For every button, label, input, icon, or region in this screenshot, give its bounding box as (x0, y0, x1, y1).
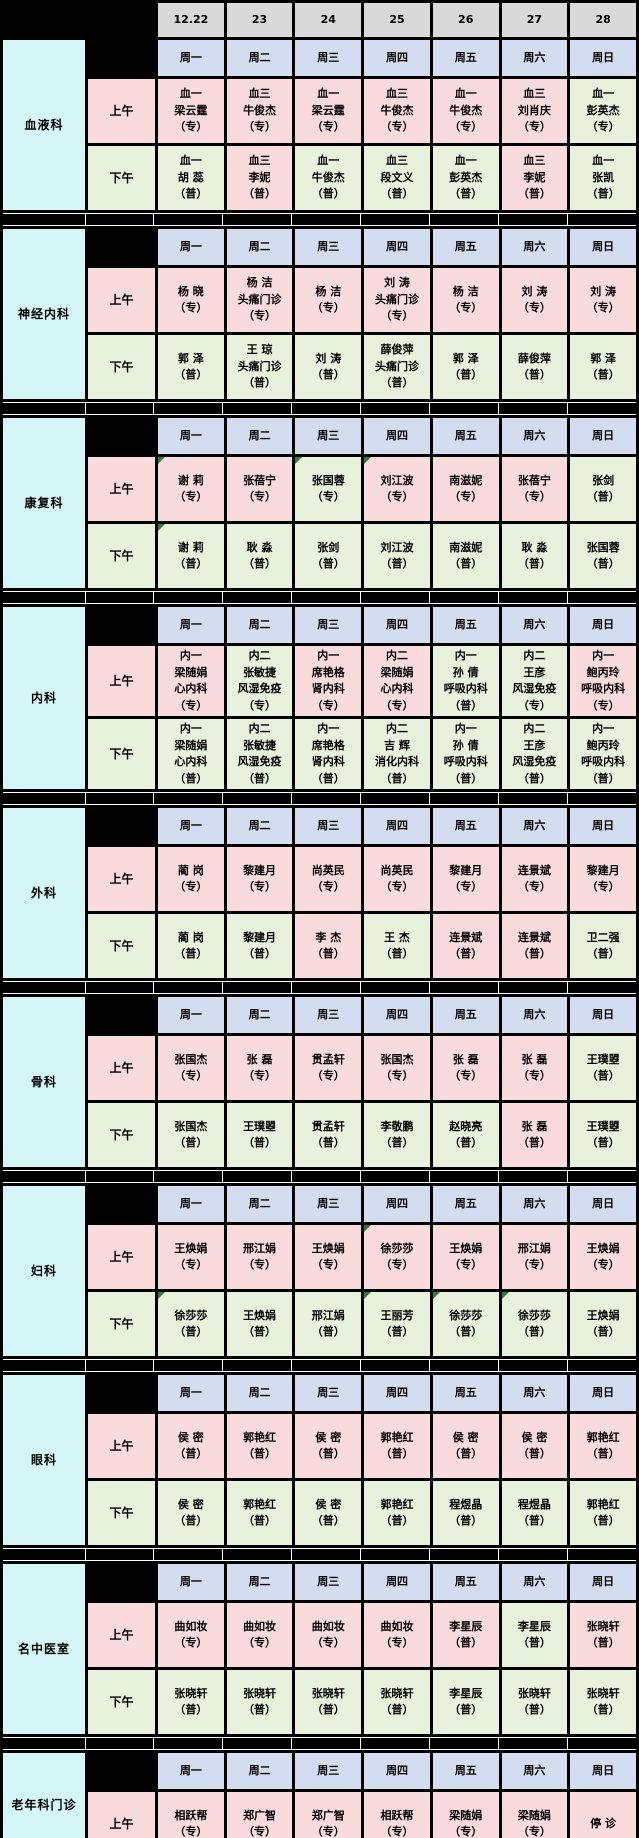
separator-bar (154, 592, 222, 603)
weekday-cell: 周四 (364, 418, 430, 454)
dept-cell: 骨科 (3, 997, 85, 1167)
date-cell: 23 (227, 3, 293, 37)
schedule-cell: 刘 涛 （普） (295, 335, 361, 399)
separator-bar (3, 982, 85, 993)
schedule-cell: 张晓轩 （普） (570, 1603, 636, 1667)
schedule-cell: 李星辰 （普） (433, 1603, 499, 1667)
schedule-cell: 尚英民 （专） (295, 847, 361, 911)
separator-bar (86, 1171, 153, 1182)
schedule-cell: 谢 莉 （专） (158, 457, 224, 521)
date-cell: 26 (433, 3, 499, 37)
schedule-cell: 内一 孙 倩 呼吸内科 （普） (433, 719, 499, 789)
schedule-cell: 程煜晶 （普） (502, 1481, 568, 1545)
dept-block-外科: 外科周一周二周三周四周五周六周日上午蔺 岗 （专）黎建月 （专）尚英民 （专）尚… (3, 808, 636, 978)
corner-cell (3, 3, 155, 37)
schedule-cell: 内二 吉 辉 消化内科 （普） (364, 719, 430, 789)
weekday-cell: 周日 (570, 1753, 636, 1789)
schedule-cell: 血一 张凯 （普） (570, 146, 636, 210)
weekday-row-spacer (88, 808, 155, 844)
session-label-cell: 下午 (88, 914, 155, 978)
schedule-cell: 郭 泽 （普） (433, 335, 499, 399)
weekday-cell: 周五 (433, 418, 499, 454)
schedule-cell: 刘 涛 （专） (570, 268, 636, 332)
separator-bar (568, 793, 636, 804)
schedule-cell: 黎建月 （专） (570, 847, 636, 911)
dept-cell: 眼科 (3, 1375, 85, 1545)
separator-bar (292, 1738, 360, 1749)
separator-bar (430, 1549, 498, 1560)
schedule-cell: 李星辰 （普） (433, 1670, 499, 1734)
session-label-cell: 下午 (88, 1103, 155, 1167)
weekday-cell: 周一 (158, 1375, 224, 1411)
weekday-cell: 周一 (158, 997, 224, 1033)
schedule-cell: 贯孟轩 （专） (295, 1036, 361, 1100)
weekday-cell: 周一 (158, 1753, 224, 1789)
schedule-cell: 张国蓉 （普） (570, 524, 636, 588)
separator-bar (3, 793, 85, 804)
schedule-cell: 内一 鲍丙玲 呼吸内科 （专） (570, 646, 636, 716)
dept-cell: 名中医室 (3, 1564, 85, 1734)
separator-bar (430, 214, 498, 225)
schedule-cell: 李 杰 （普） (295, 914, 361, 978)
schedule-cell: 贯孟轩 （普） (295, 1103, 361, 1167)
weekday-row-spacer (88, 1375, 155, 1411)
schedule-cell: 王璞曌 （普） (570, 1103, 636, 1167)
dept-cell: 神经内科 (3, 229, 85, 399)
schedule-cell: 徐莎莎 （专） (364, 1225, 430, 1289)
date-header-row: 12.22232425262728 (3, 3, 636, 37)
schedule-cell: 黎建月 （普） (227, 914, 293, 978)
schedule-cell: 郭艳红 （普） (364, 1414, 430, 1478)
separator-bar (499, 1171, 567, 1182)
separator-bar (430, 1171, 498, 1182)
schedule-cell: 王焕娟 （专） (570, 1225, 636, 1289)
block-separator (3, 591, 636, 604)
weekday-cell: 周五 (433, 808, 499, 844)
session-label-cell: 下午 (88, 524, 155, 588)
separator-bar (223, 592, 291, 603)
separator-bar (430, 1738, 498, 1749)
schedule-cell: 张晓轩 （普） (502, 1670, 568, 1734)
separator-bar (86, 982, 153, 993)
schedule-cell: 赵晓亮 （普） (433, 1103, 499, 1167)
session-label-cell: 上午 (88, 1603, 155, 1667)
block-separator (3, 1170, 636, 1183)
weekday-cell: 周二 (227, 1564, 293, 1600)
session-label-cell: 下午 (88, 1481, 155, 1545)
separator-bar (568, 403, 636, 414)
schedule-cell: 杨 洁 头痛门诊 （专） (227, 268, 293, 332)
weekday-cell: 周三 (295, 1564, 361, 1600)
schedule-cell: 邢江娟 （普） (295, 1292, 361, 1356)
separator-bar (292, 982, 360, 993)
schedule-cell: 南滋妮 （普） (433, 524, 499, 588)
weekday-cell: 周四 (364, 229, 430, 265)
dept-block-妇科: 妇科周一周二周三周四周五周六周日上午王焕娟 （专）邢江娟 （专）王焕娟 （专）徐… (3, 1186, 636, 1356)
separator-bar (568, 982, 636, 993)
schedule-cell: 内二 王彦 风湿免疫 （普） (502, 719, 568, 789)
weekday-cell: 周一 (158, 229, 224, 265)
schedule-cell: 张国杰 （专） (364, 1036, 430, 1100)
separator-bar (86, 214, 153, 225)
schedule-cell: 耿 淼 （普） (502, 524, 568, 588)
schedule-cell: 张 磊 （专） (502, 1036, 568, 1100)
schedule-cell: 杨 晓 （专） (158, 268, 224, 332)
schedule-cell: 内一 鲍丙玲 呼吸内科 （普） (570, 719, 636, 789)
dept-block-康复科: 康复科周一周二周三周四周五周六周日上午谢 莉 （专）张蓓宁 （专）张国蓉 （专）… (3, 418, 636, 588)
schedule-cell: 郭艳红 （普） (364, 1481, 430, 1545)
separator-bar (154, 403, 222, 414)
schedule-cell: 耿 淼 （普） (227, 524, 293, 588)
separator-bar (499, 1549, 567, 1560)
schedule-cell: 徐莎莎 （普） (158, 1292, 224, 1356)
schedule-cell: 徐莎莎 （普） (502, 1292, 568, 1356)
comment-marker-icon (364, 1225, 371, 1232)
session-label-cell: 下午 (88, 719, 155, 789)
schedule-cell: 相跃帮 （专） (364, 1792, 430, 1838)
separator-bar (292, 793, 360, 804)
separator-bar (86, 592, 153, 603)
separator-bar (499, 1738, 567, 1749)
comment-marker-icon (158, 524, 165, 531)
weekday-cell: 周六 (502, 607, 568, 643)
separator-bar (361, 592, 429, 603)
weekday-cell: 周日 (570, 1375, 636, 1411)
separator-bar (86, 1738, 153, 1749)
schedule-cell: 谢 莉 （普） (158, 524, 224, 588)
separator-bar (154, 1738, 222, 1749)
weekday-cell: 周二 (227, 418, 293, 454)
separator-bar (361, 214, 429, 225)
schedule-cell: 张晓轩 （普） (158, 1670, 224, 1734)
schedule-cell: 张剑 （普） (295, 524, 361, 588)
schedule-cell: 邢江娟 （专） (502, 1225, 568, 1289)
separator-bar (86, 793, 153, 804)
dept-block-内科: 内科周一周二周三周四周五周六周日上午内一 梁随娟 心内科 （专）内二 张敏捷 风… (3, 607, 636, 789)
separator-bar (361, 982, 429, 993)
separator-bar (154, 1549, 222, 1560)
separator-bar (3, 592, 85, 603)
dept-block-血液科: 血液科周一周二周三周四周五周六周日上午血一 梁云霆 （专）血三 牛俊杰 （专）血… (3, 40, 636, 210)
weekday-cell: 周三 (295, 607, 361, 643)
schedule-cell: 内二 王彦 风湿免疫 （专） (502, 646, 568, 716)
weekday-row-spacer (88, 1186, 155, 1222)
schedule-cell: 卫二强 （普） (570, 914, 636, 978)
schedule-cell: 连景斌 （专） (502, 847, 568, 911)
weekday-cell: 周五 (433, 1753, 499, 1789)
weekday-cell: 周四 (364, 1186, 430, 1222)
separator-bar (430, 1360, 498, 1371)
schedule-cell: 张晓轩 （普） (364, 1670, 430, 1734)
weekday-cell: 周六 (502, 808, 568, 844)
schedule-cell: 刘江波 （专） (364, 457, 430, 521)
schedule-cell: 邢江娟 （专） (227, 1225, 293, 1289)
weekday-cell: 周日 (570, 40, 636, 76)
schedule-cell: 内一 席艳格 肾内科 （普） (295, 719, 361, 789)
separator-bar (3, 214, 85, 225)
weekday-cell: 周六 (502, 1375, 568, 1411)
schedule-cell: 黎建月 （专） (227, 847, 293, 911)
weekday-cell: 周三 (295, 808, 361, 844)
schedule-cell: 张国蓉 （专） (295, 457, 361, 521)
schedule-cell: 连景斌 （普） (433, 914, 499, 978)
separator-bar (223, 214, 291, 225)
schedule-cell: 血一 牛俊杰 （普） (295, 146, 361, 210)
weekday-row-spacer (88, 1753, 155, 1789)
weekday-cell: 周四 (364, 1564, 430, 1600)
schedule-cell: 侯 密 （普） (502, 1414, 568, 1478)
weekday-cell: 周五 (433, 1375, 499, 1411)
weekday-cell: 周三 (295, 1186, 361, 1222)
schedule-cell: 张蓓宁 （专） (227, 457, 293, 521)
session-label-cell: 上午 (88, 268, 155, 332)
weekday-cell: 周一 (158, 808, 224, 844)
schedule-cell: 刘 涛 （专） (502, 268, 568, 332)
separator-bar (361, 403, 429, 414)
schedule-cell: 王丽芳 （普） (364, 1292, 430, 1356)
schedule-cell: 郭艳红 （普） (570, 1414, 636, 1478)
block-separator (3, 1548, 636, 1561)
separator-bar (154, 1360, 222, 1371)
weekday-cell: 周三 (295, 997, 361, 1033)
weekday-cell: 周四 (364, 1753, 430, 1789)
separator-bar (430, 982, 498, 993)
separator-bar (292, 1549, 360, 1560)
weekday-cell: 周六 (502, 1186, 568, 1222)
separator-bar (223, 793, 291, 804)
schedule-cell: 内一 孙 倩 呼吸内科 （普） (433, 646, 499, 716)
session-label-cell: 上午 (88, 1225, 155, 1289)
separator-bar (86, 403, 153, 414)
schedule-cell: 侯 密 （普） (158, 1414, 224, 1478)
separator-bar (86, 1360, 153, 1371)
weekday-cell: 周五 (433, 229, 499, 265)
schedule-cell: 内一 席艳格 肾内科 （专） (295, 646, 361, 716)
comment-marker-icon (295, 457, 302, 464)
weekday-cell: 周四 (364, 607, 430, 643)
dept-cell: 妇科 (3, 1186, 85, 1356)
schedule-cell: 血三 段文义 （普） (364, 146, 430, 210)
schedule-cell: 梁随娟 （专） (502, 1792, 568, 1838)
separator-bar (499, 793, 567, 804)
separator-bar (292, 403, 360, 414)
weekday-cell: 周五 (433, 607, 499, 643)
separator-bar (499, 1360, 567, 1371)
weekday-cell: 周一 (158, 40, 224, 76)
weekday-cell: 周一 (158, 1186, 224, 1222)
schedule-cell: 血三 李妮 （普） (227, 146, 293, 210)
schedule-cell: 内一 梁随娟 心内科 （专） (158, 646, 224, 716)
dept-cell: 康复科 (3, 418, 85, 588)
weekday-cell: 周二 (227, 997, 293, 1033)
session-label-cell: 上午 (88, 1414, 155, 1478)
separator-bar (3, 1738, 85, 1749)
separator-bar (154, 214, 222, 225)
weekday-cell: 周二 (227, 1753, 293, 1789)
separator-bar (568, 214, 636, 225)
separator-bar (223, 1360, 291, 1371)
schedule-cell: 王焕娟 （专） (158, 1225, 224, 1289)
dept-block-眼科: 眼科周一周二周三周四周五周六周日上午侯 密 （普）郭艳红 （普）侯 密 （普）郭… (3, 1375, 636, 1545)
weekday-cell: 周日 (570, 418, 636, 454)
weekday-row-spacer (88, 1564, 155, 1600)
session-label-cell: 下午 (88, 1670, 155, 1734)
outpatient-schedule-screen: 12.22232425262728血液科周一周二周三周四周五周六周日上午血一 梁… (0, 0, 639, 1838)
weekday-cell: 周一 (158, 1564, 224, 1600)
separator-bar (292, 214, 360, 225)
separator-bar (430, 403, 498, 414)
block-separator (3, 981, 636, 994)
schedule-cell: 血一 胡 蕊 （普） (158, 146, 224, 210)
weekday-cell: 周五 (433, 997, 499, 1033)
separator-bar (292, 1360, 360, 1371)
session-label-cell: 下午 (88, 1292, 155, 1356)
schedule-cell: 王璞曌 （普） (570, 1036, 636, 1100)
weekday-cell: 周日 (570, 607, 636, 643)
schedule-cell: 王 琼 头痛门诊 （普） (227, 335, 293, 399)
weekday-cell: 周四 (364, 997, 430, 1033)
schedule-table: 12.22232425262728血液科周一周二周三周四周五周六周日上午血一 梁… (3, 3, 636, 1838)
schedule-cell: 张国杰 （普） (158, 1103, 224, 1167)
schedule-cell: 张 磊 （专） (227, 1036, 293, 1100)
session-label-cell: 上午 (88, 1792, 155, 1838)
schedule-cell: 薛俊萍 （普） (502, 335, 568, 399)
schedule-cell: 南滋妮 （专） (433, 457, 499, 521)
schedule-cell: 杨 洁 （专） (433, 268, 499, 332)
block-separator (3, 402, 636, 415)
schedule-cell: 血一 梁云霆 （专） (295, 79, 361, 143)
dept-cell: 内科 (3, 607, 85, 789)
schedule-cell: 连景斌 （普） (502, 914, 568, 978)
weekday-cell: 周二 (227, 607, 293, 643)
schedule-cell: 蔺 岗 （专） (158, 847, 224, 911)
schedule-cell: 侯 密 （普） (295, 1481, 361, 1545)
separator-bar (361, 1549, 429, 1560)
comment-marker-icon (158, 457, 165, 464)
weekday-cell: 周日 (570, 229, 636, 265)
separator-bar (568, 1549, 636, 1560)
schedule-cell: 黎建月 （专） (433, 847, 499, 911)
weekday-cell: 周二 (227, 229, 293, 265)
separator-bar (154, 793, 222, 804)
separator-bar (223, 1171, 291, 1182)
schedule-cell: 刘江波 （普） (364, 524, 430, 588)
weekday-cell: 周二 (227, 40, 293, 76)
schedule-cell: 侯 密 （普） (433, 1414, 499, 1478)
separator-bar (361, 1171, 429, 1182)
comment-marker-icon (433, 1292, 440, 1299)
weekday-cell: 周三 (295, 40, 361, 76)
separator-bar (3, 403, 85, 414)
schedule-cell: 张剑 （普） (570, 457, 636, 521)
separator-bar (499, 214, 567, 225)
schedule-cell: 曲如妆 （专） (364, 1603, 430, 1667)
schedule-cell: 血一 彭英杰 （普） (433, 146, 499, 210)
schedule-cell: 内二 张敏捷 风湿免疫 （普） (227, 719, 293, 789)
schedule-cell: 曲如妆 （专） (295, 1603, 361, 1667)
schedule-cell: 曲如妆 （专） (158, 1603, 224, 1667)
schedule-cell: 郭艳红 （普） (570, 1481, 636, 1545)
weekday-cell: 周一 (158, 418, 224, 454)
schedule-cell: 王焕娟 （普） (227, 1292, 293, 1356)
session-label-cell: 上午 (88, 457, 155, 521)
weekday-cell: 周二 (227, 1186, 293, 1222)
schedule-cell: 血三 牛俊杰 （专） (227, 79, 293, 143)
schedule-cell: 郭艳红 （普） (227, 1481, 293, 1545)
schedule-cell: 张 磊 （专） (433, 1036, 499, 1100)
schedule-cell: 内二 张敏捷 风湿免疫 （专） (227, 646, 293, 716)
weekday-cell: 周二 (227, 808, 293, 844)
weekday-cell: 周六 (502, 1564, 568, 1600)
session-label-cell: 上午 (88, 79, 155, 143)
schedule-cell: 郭 泽 （普） (570, 335, 636, 399)
schedule-cell: 蔺 岗 （普） (158, 914, 224, 978)
session-label-cell: 上午 (88, 847, 155, 911)
separator-bar (3, 1171, 85, 1182)
separator-bar (292, 1171, 360, 1182)
comment-marker-icon (364, 1292, 371, 1299)
block-separator (3, 213, 636, 226)
comment-marker-icon (158, 1292, 165, 1299)
block-separator (3, 1359, 636, 1372)
separator-bar (361, 793, 429, 804)
schedule-cell: 血三 牛俊杰 （专） (364, 79, 430, 143)
schedule-cell: 张晓轩 （普） (295, 1670, 361, 1734)
block-separator (3, 1737, 636, 1750)
schedule-cell: 相跃帮 （专） (158, 1792, 224, 1838)
schedule-cell: 停 诊 (570, 1792, 636, 1838)
schedule-cell: 血三 刘肖庆 （专） (502, 79, 568, 143)
weekday-cell: 周四 (364, 808, 430, 844)
dept-cell: 老年科门诊 (3, 1753, 85, 1838)
schedule-cell: 王 杰 （普） (364, 914, 430, 978)
schedule-cell: 程煜晶 （普） (433, 1481, 499, 1545)
dept-block-骨科: 骨科周一周二周三周四周五周六周日上午张国杰 （专）张 磊 （专）贯孟轩 （专）张… (3, 997, 636, 1167)
block-separator (3, 792, 636, 805)
weekday-cell: 周二 (227, 1375, 293, 1411)
separator-bar (568, 592, 636, 603)
schedule-cell: 郭 泽 （普） (158, 335, 224, 399)
separator-bar (3, 1360, 85, 1371)
schedule-cell: 侯 密 （普） (295, 1414, 361, 1478)
session-label-cell: 上午 (88, 1036, 155, 1100)
schedule-cell: 郭艳红 （普） (227, 1414, 293, 1478)
comment-marker-icon (364, 457, 371, 464)
separator-bar (223, 1549, 291, 1560)
date-cell: 28 (570, 3, 636, 37)
separator-bar (223, 403, 291, 414)
weekday-cell: 周六 (502, 1753, 568, 1789)
separator-bar (499, 403, 567, 414)
weekday-cell: 周三 (295, 418, 361, 454)
schedule-cell: 血一 彭英杰 （专） (570, 79, 636, 143)
schedule-cell: 张晓轩 （普） (570, 1670, 636, 1734)
dept-block-老年科门诊: 老年科门诊周一周二周三周四周五周六周日上午相跃帮 （专）郑广智 （专）郑广智 （… (3, 1753, 636, 1838)
separator-bar (3, 1549, 85, 1560)
schedule-cell: 血一 牛俊杰 （专） (433, 79, 499, 143)
session-label-cell: 下午 (88, 335, 155, 399)
weekday-cell: 周五 (433, 1564, 499, 1600)
separator-bar (223, 982, 291, 993)
schedule-cell: 李敬鹏 （普） (364, 1103, 430, 1167)
weekday-cell: 周一 (158, 607, 224, 643)
schedule-cell: 血三 李妮 （普） (502, 146, 568, 210)
weekday-cell: 周日 (570, 1186, 636, 1222)
dept-cell: 血液科 (3, 40, 85, 210)
separator-bar (292, 592, 360, 603)
weekday-cell: 周六 (502, 40, 568, 76)
weekday-row-spacer (88, 997, 155, 1033)
